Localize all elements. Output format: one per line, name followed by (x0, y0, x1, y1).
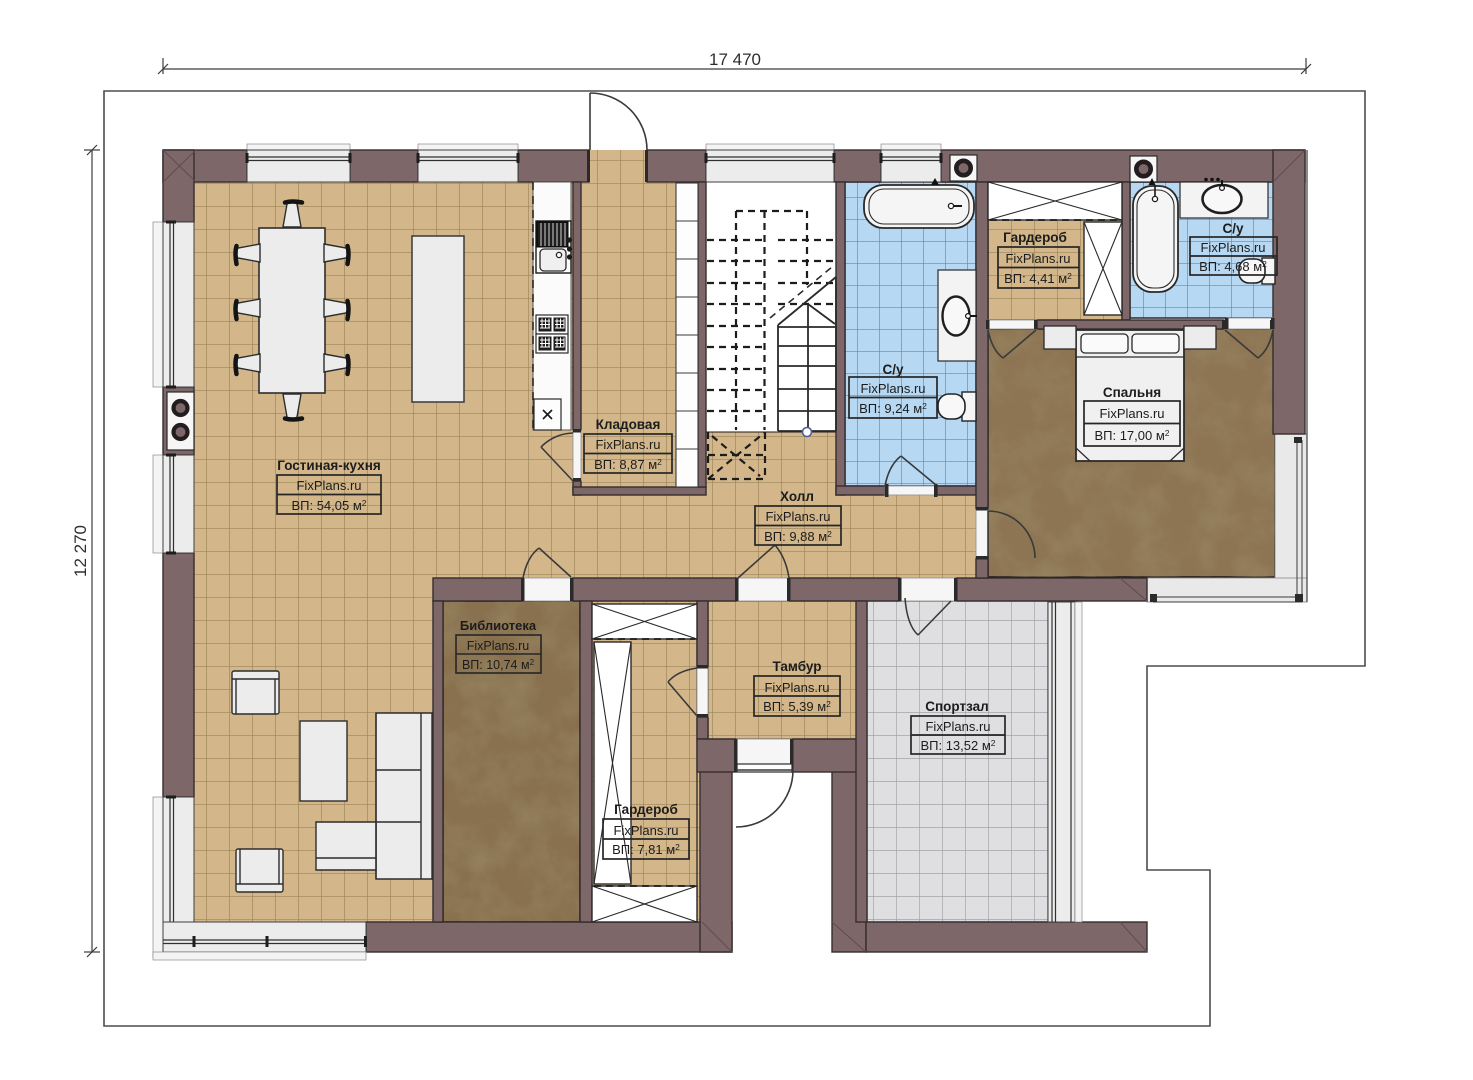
svg-text:ВП: 13,52 м2: ВП: 13,52 м2 (920, 738, 995, 753)
svg-text:Гостиная-кухня: Гостиная-кухня (277, 458, 380, 473)
svg-text:ВП: 9,88 м2: ВП: 9,88 м2 (764, 529, 832, 544)
svg-text:FixPlans.ru: FixPlans.ru (1200, 240, 1265, 255)
svg-text:С/у: С/у (882, 362, 904, 377)
svg-text:FixPlans.ru: FixPlans.ru (613, 823, 678, 838)
svg-text:Библиотека: Библиотека (460, 618, 537, 633)
svg-text:Гардероб: Гардероб (1003, 230, 1067, 245)
svg-text:FixPlans.ru: FixPlans.ru (764, 680, 829, 695)
svg-text:FixPlans.ru: FixPlans.ru (467, 639, 530, 653)
svg-text:FixPlans.ru: FixPlans.ru (1099, 406, 1164, 421)
svg-text:Кладовая: Кладовая (596, 417, 661, 432)
svg-text:Спальня: Спальня (1103, 385, 1161, 400)
svg-text:ВП: 9,24 м2: ВП: 9,24 м2 (859, 401, 927, 416)
svg-text:ВП: 4,41 м2: ВП: 4,41 м2 (1004, 271, 1072, 286)
svg-text:17 470: 17 470 (709, 50, 761, 69)
svg-text:FixPlans.ru: FixPlans.ru (925, 719, 990, 734)
svg-text:FixPlans.ru: FixPlans.ru (1005, 251, 1070, 266)
svg-text:ВП: 5,39 м2: ВП: 5,39 м2 (763, 699, 831, 714)
svg-text:С/у: С/у (1222, 221, 1244, 236)
svg-text:FixPlans.ru: FixPlans.ru (296, 478, 361, 493)
svg-text:Холл: Холл (780, 489, 814, 504)
svg-text:ВП: 17,00 м2: ВП: 17,00 м2 (1094, 428, 1169, 443)
svg-text:Гардероб: Гардероб (614, 802, 678, 817)
svg-text:FixPlans.ru: FixPlans.ru (765, 509, 830, 524)
svg-text:FixPlans.ru: FixPlans.ru (595, 437, 660, 452)
svg-text:Спортзал: Спортзал (925, 699, 988, 714)
svg-text:12 270: 12 270 (71, 525, 90, 577)
svg-text:ВП: 10,74 м2: ВП: 10,74 м2 (462, 658, 535, 672)
svg-text:ВП: 54,05 м2: ВП: 54,05 м2 (291, 498, 366, 513)
svg-text:ВП: 7,81 м2: ВП: 7,81 м2 (612, 842, 680, 857)
svg-text:ВП: 4,68 м2: ВП: 4,68 м2 (1199, 259, 1267, 274)
svg-text:Тамбур: Тамбур (773, 659, 822, 674)
svg-text:ВП: 8,87 м2: ВП: 8,87 м2 (594, 457, 662, 472)
svg-text:FixPlans.ru: FixPlans.ru (860, 381, 925, 396)
